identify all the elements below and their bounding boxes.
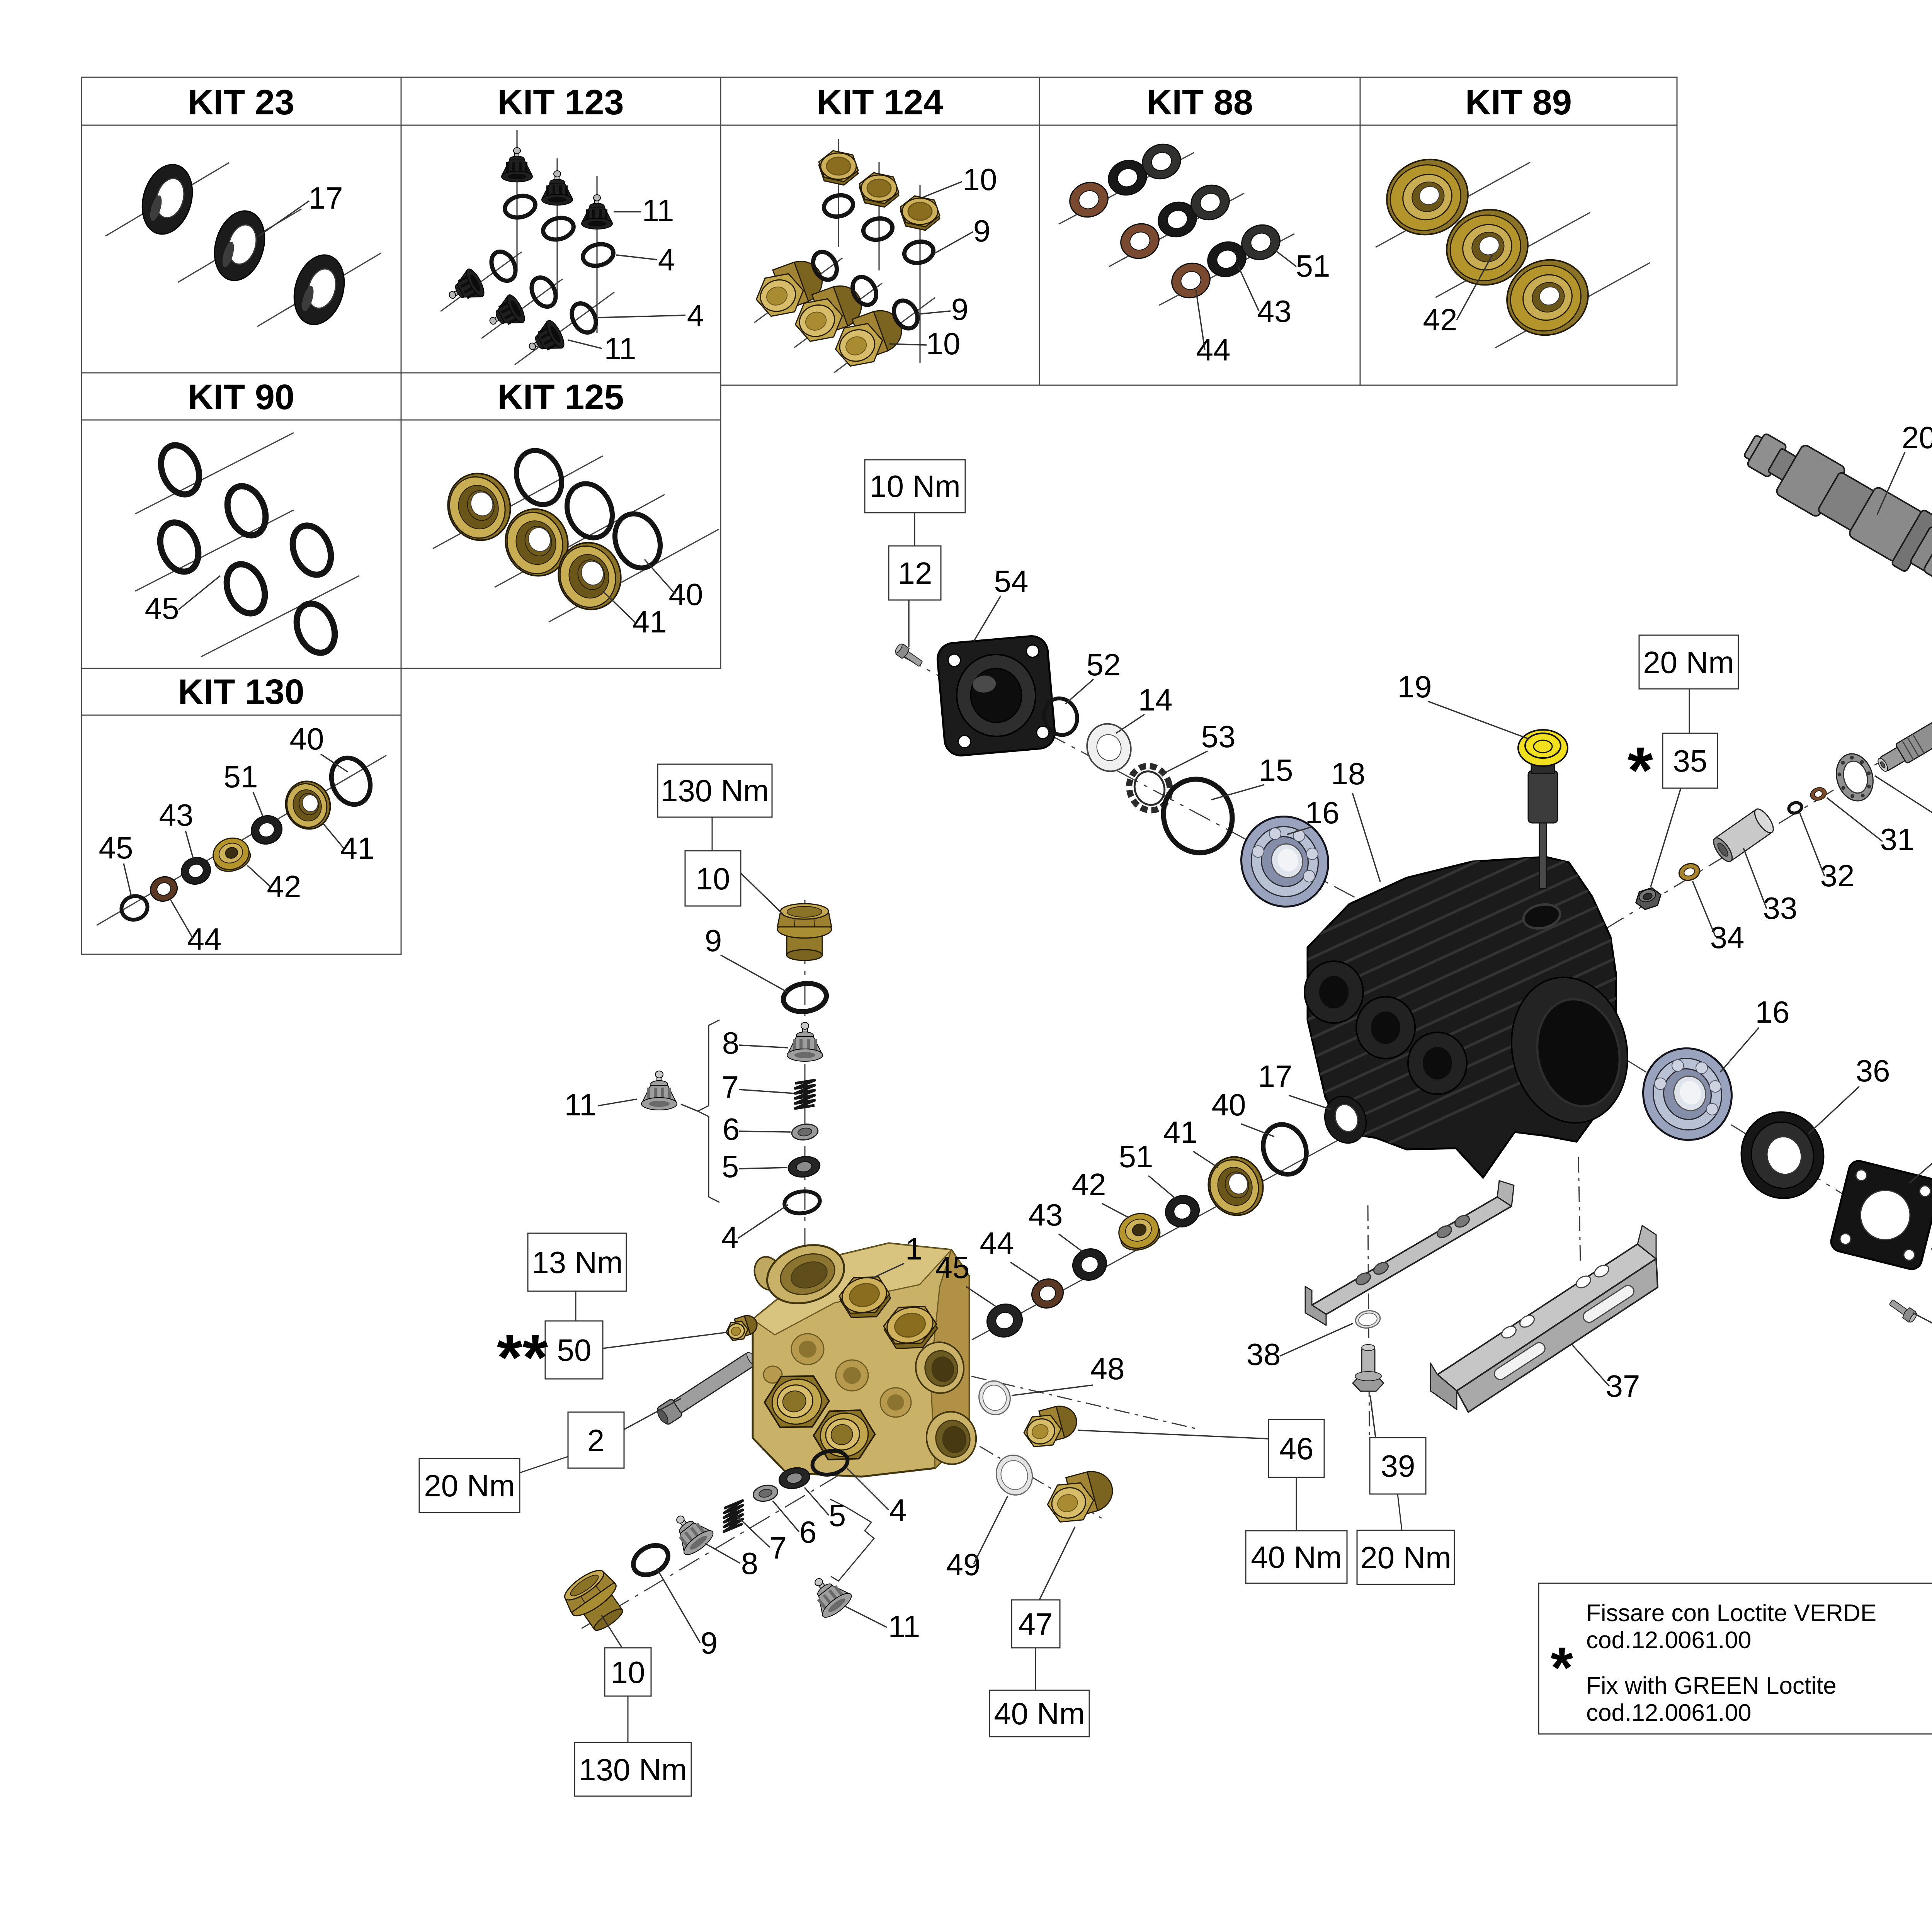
svg-text:16: 16 bbox=[1305, 795, 1340, 830]
svg-text:20 Nm: 20 Nm bbox=[424, 1469, 515, 1503]
svg-text:5: 5 bbox=[829, 1498, 846, 1533]
svg-text:7: 7 bbox=[770, 1531, 787, 1565]
svg-text:47: 47 bbox=[1019, 1607, 1053, 1641]
svg-text:4: 4 bbox=[889, 1493, 907, 1527]
svg-text:51: 51 bbox=[224, 760, 258, 794]
svg-text:KIT 123: KIT 123 bbox=[497, 83, 624, 122]
svg-text:KIT 125: KIT 125 bbox=[497, 377, 624, 417]
svg-text:2: 2 bbox=[587, 1423, 605, 1458]
svg-text:10: 10 bbox=[696, 862, 730, 896]
svg-text:48: 48 bbox=[1090, 1351, 1125, 1386]
svg-text:8: 8 bbox=[722, 1026, 740, 1060]
svg-text:9: 9 bbox=[701, 1626, 718, 1660]
svg-text:40: 40 bbox=[1212, 1088, 1246, 1122]
svg-text:42: 42 bbox=[1423, 303, 1458, 337]
svg-text:9: 9 bbox=[705, 923, 722, 958]
svg-text:130 Nm: 130 Nm bbox=[579, 1752, 687, 1787]
svg-text:44: 44 bbox=[980, 1226, 1014, 1260]
svg-text:41: 41 bbox=[1163, 1115, 1198, 1149]
svg-text:130 Nm: 130 Nm bbox=[661, 773, 769, 808]
svg-text:51: 51 bbox=[1119, 1139, 1153, 1174]
svg-text:14: 14 bbox=[1138, 683, 1173, 717]
svg-text:KIT 130: KIT 130 bbox=[178, 672, 304, 712]
svg-text:46: 46 bbox=[1279, 1431, 1314, 1466]
svg-text:39: 39 bbox=[1381, 1449, 1415, 1483]
svg-text:*: * bbox=[1551, 1635, 1573, 1700]
svg-text:18: 18 bbox=[1331, 756, 1366, 791]
svg-text:**: ** bbox=[497, 1321, 548, 1394]
svg-text:52: 52 bbox=[1087, 648, 1121, 682]
svg-text:11: 11 bbox=[642, 193, 674, 228]
svg-text:4: 4 bbox=[687, 298, 704, 333]
svg-text:17: 17 bbox=[309, 181, 343, 215]
svg-text:Fix with GREEN Loctite: Fix with GREEN Loctite bbox=[1586, 1673, 1837, 1699]
svg-text:42: 42 bbox=[1072, 1167, 1106, 1202]
svg-text:54: 54 bbox=[994, 564, 1029, 598]
svg-text:53: 53 bbox=[1201, 719, 1236, 754]
svg-text:20 Nm: 20 Nm bbox=[1360, 1540, 1451, 1575]
svg-text:34: 34 bbox=[1710, 920, 1745, 955]
svg-text:cod.12.0061.00: cod.12.0061.00 bbox=[1586, 1627, 1752, 1654]
svg-text:5: 5 bbox=[722, 1149, 739, 1184]
svg-text:40: 40 bbox=[669, 577, 703, 612]
svg-text:50: 50 bbox=[557, 1333, 592, 1367]
svg-text:40: 40 bbox=[290, 722, 324, 756]
svg-text:51: 51 bbox=[1296, 249, 1330, 283]
svg-text:31: 31 bbox=[1880, 822, 1915, 857]
svg-text:12: 12 bbox=[898, 556, 932, 590]
svg-text:13 Nm: 13 Nm bbox=[532, 1245, 623, 1280]
svg-text:10 Nm: 10 Nm bbox=[869, 469, 961, 503]
svg-text:KIT 90: KIT 90 bbox=[188, 377, 294, 417]
svg-text:20: 20 bbox=[1902, 420, 1932, 455]
svg-text:16: 16 bbox=[1755, 995, 1790, 1029]
svg-text:KIT 89: KIT 89 bbox=[1465, 83, 1572, 122]
svg-text:43: 43 bbox=[1257, 294, 1292, 328]
svg-text:44: 44 bbox=[187, 922, 222, 956]
svg-text:9: 9 bbox=[951, 292, 969, 326]
svg-text:41: 41 bbox=[340, 831, 375, 865]
svg-text:6: 6 bbox=[799, 1515, 817, 1549]
svg-text:7: 7 bbox=[722, 1070, 739, 1104]
svg-text:1: 1 bbox=[905, 1232, 923, 1266]
svg-text:40 Nm: 40 Nm bbox=[1251, 1540, 1342, 1574]
svg-text:11: 11 bbox=[604, 331, 636, 366]
svg-text:KIT 124: KIT 124 bbox=[816, 83, 943, 122]
svg-text:*: * bbox=[1628, 734, 1653, 807]
svg-text:17: 17 bbox=[1258, 1059, 1293, 1093]
svg-text:15: 15 bbox=[1259, 753, 1293, 787]
svg-text:32: 32 bbox=[1820, 858, 1855, 893]
svg-text:43: 43 bbox=[159, 798, 194, 832]
svg-text:45: 45 bbox=[145, 591, 179, 626]
svg-text:41: 41 bbox=[633, 605, 667, 639]
svg-text:10: 10 bbox=[611, 1655, 645, 1690]
svg-text:cod.12.0061.00: cod.12.0061.00 bbox=[1586, 1700, 1752, 1726]
svg-text:43: 43 bbox=[1029, 1198, 1063, 1232]
svg-text:20 Nm: 20 Nm bbox=[1643, 645, 1734, 680]
svg-text:4: 4 bbox=[721, 1220, 739, 1254]
svg-text:45: 45 bbox=[99, 831, 133, 865]
svg-text:42: 42 bbox=[267, 869, 301, 904]
svg-text:40 Nm: 40 Nm bbox=[994, 1696, 1085, 1731]
svg-text:9: 9 bbox=[973, 214, 991, 248]
svg-text:10: 10 bbox=[926, 326, 961, 361]
svg-text:38: 38 bbox=[1247, 1337, 1281, 1372]
svg-text:36: 36 bbox=[1856, 1054, 1890, 1088]
svg-text:11: 11 bbox=[564, 1088, 596, 1122]
svg-text:6: 6 bbox=[723, 1112, 740, 1146]
svg-text:KIT 88: KIT 88 bbox=[1146, 83, 1253, 122]
svg-text:44: 44 bbox=[1196, 333, 1231, 367]
svg-text:4: 4 bbox=[658, 243, 675, 277]
svg-text:19: 19 bbox=[1398, 670, 1432, 704]
svg-text:33: 33 bbox=[1763, 891, 1798, 925]
svg-text:10: 10 bbox=[963, 162, 997, 197]
svg-text:Fissare con Loctite VERDE: Fissare con Loctite VERDE bbox=[1586, 1600, 1876, 1627]
svg-text:49: 49 bbox=[946, 1547, 981, 1582]
svg-text:11: 11 bbox=[888, 1609, 920, 1644]
svg-text:37: 37 bbox=[1606, 1369, 1640, 1403]
svg-text:35: 35 bbox=[1673, 744, 1708, 778]
svg-text:KIT 23: KIT 23 bbox=[188, 83, 294, 122]
svg-text:45: 45 bbox=[935, 1250, 970, 1285]
svg-text:8: 8 bbox=[741, 1546, 759, 1581]
